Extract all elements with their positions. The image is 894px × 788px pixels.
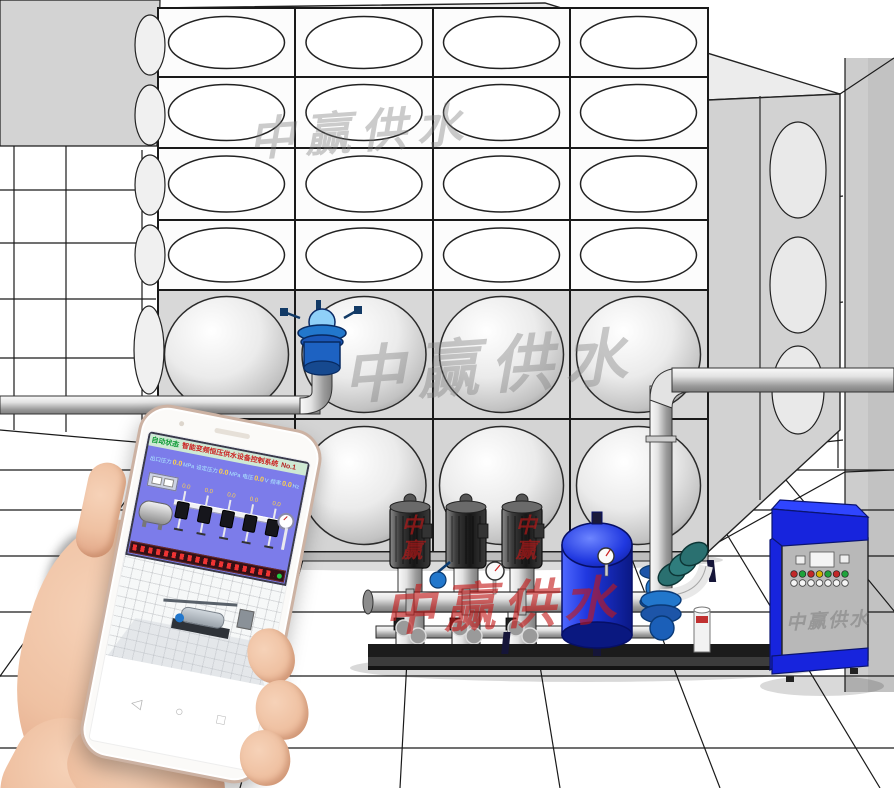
- pressure-gauge: [486, 562, 504, 594]
- back-icon[interactable]: ◁: [130, 695, 143, 711]
- control-cabinet: [760, 500, 884, 696]
- hmi-outlet-line: [281, 528, 288, 550]
- pump-1: [390, 494, 432, 648]
- cabinet-button: [840, 555, 849, 563]
- pump-3: [502, 494, 544, 648]
- speaker-slot: [214, 428, 250, 440]
- status-ok-dot: [276, 573, 282, 579]
- home-icon[interactable]: ○: [174, 703, 185, 718]
- butterfly-valve: [430, 572, 446, 588]
- hmi-tank-icon: [137, 499, 175, 527]
- cabinet-button: [796, 556, 805, 564]
- cabinet-display: [810, 552, 834, 567]
- hmi-button-box: [147, 472, 179, 491]
- recents-icon[interactable]: □: [216, 711, 227, 726]
- hmi-unit-label: No.1: [280, 461, 296, 471]
- camera-icon: [179, 421, 185, 427]
- pump-room-scene: 中赢供水 中赢供水 中赢供水 中赢供水 中赢 中赢 自动状态 智能变频恒压供水设…: [0, 0, 894, 788]
- pump-2: [446, 494, 488, 648]
- android-nav-bar: ◁ ○ □: [96, 684, 261, 737]
- hand-with-phone: 自动状态 智能变频恒压供水设备控制系统 No.1 出口压力0.0MPa 设定压力…: [38, 402, 306, 788]
